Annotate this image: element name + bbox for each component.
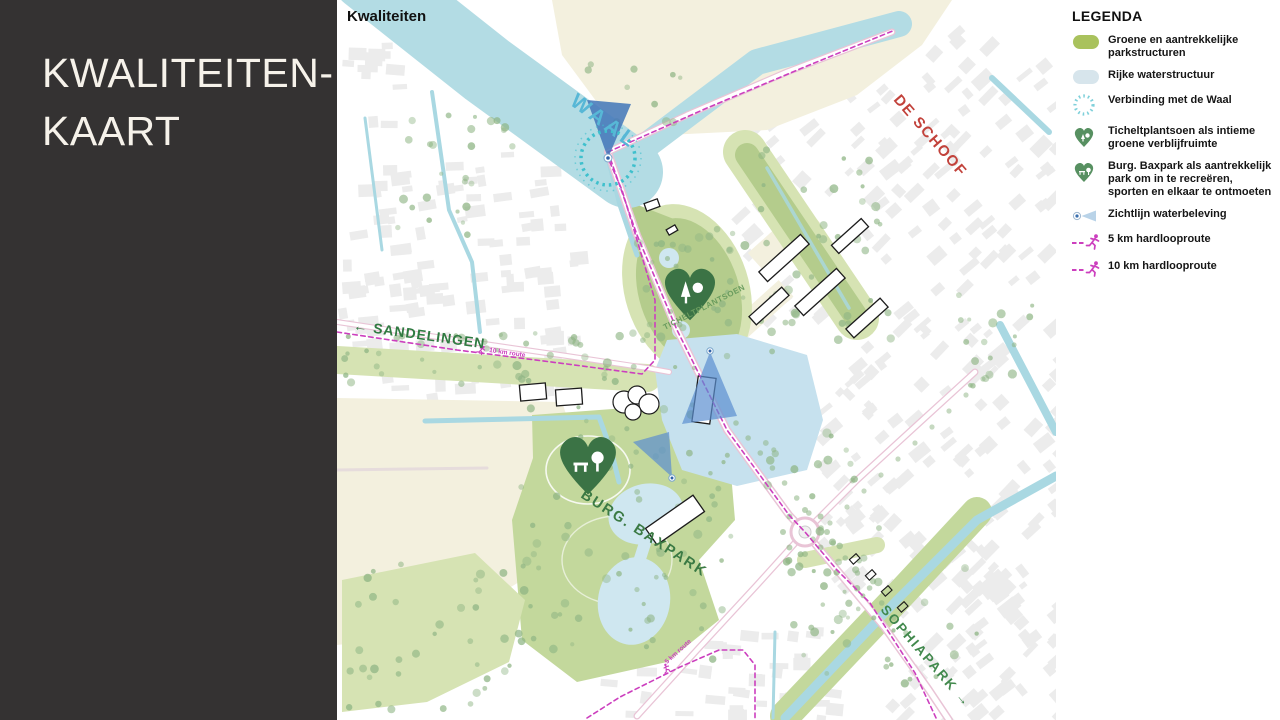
slide-title: KWALITEITEN- KAART <box>42 44 334 160</box>
water-area-icon <box>1072 69 1102 85</box>
ticheltplantsoen-heart-icon <box>1072 125 1102 149</box>
run-route-5km-icon <box>1072 233 1102 251</box>
park-area-icon <box>1072 34 1102 50</box>
title-panel: KWALITEITEN- KAART <box>0 0 337 720</box>
legend-label: Verbinding met de Waal <box>1108 94 1232 107</box>
legend-item-parkstructuren: Groene en aantrekkelijke parkstructuren <box>1072 34 1272 60</box>
legend-item-10km: 10 km hardlooproute <box>1072 260 1272 278</box>
legend-label: 5 km hardlooproute <box>1108 233 1211 246</box>
map-canvas: WAALDE SCHOOF← SANDELINGENTICHELTPLANTSO… <box>337 0 1056 720</box>
legend-item-waterstructuur: Rijke waterstructuur <box>1072 69 1272 85</box>
run-route-10km-icon <box>1072 260 1102 278</box>
legend-item-verbinding-waal: Verbinding met de Waal <box>1072 94 1272 116</box>
slide: KWALITEITEN- KAART WAALDE SCHOOF← SANDEL… <box>0 0 1280 720</box>
legend-label: Groene en aantrekkelijke parkstructuren <box>1108 34 1272 60</box>
legend-label: 10 km hardlooproute <box>1108 260 1217 273</box>
sightline-icon <box>1072 208 1102 224</box>
legend-label: Zichtlijn waterbeleving <box>1108 208 1227 221</box>
legend-item-baxpark: Burg. Baxpark als aantrekkelijk park om … <box>1072 160 1272 199</box>
legend-item-ticheltplantsoen: Ticheltplantsoen als intieme groene verb… <box>1072 125 1272 151</box>
baxpark-heart-icon <box>1072 160 1102 184</box>
legend-label: Burg. Baxpark als aantrekkelijk park om … <box>1108 160 1272 199</box>
legend-label: Ticheltplantsoen als intieme groene verb… <box>1108 125 1272 151</box>
waal-connection-icon <box>1072 94 1102 116</box>
legend-label: Rijke waterstructuur <box>1108 69 1214 82</box>
legend-title: LEGENDA <box>1072 8 1272 24</box>
kwaliteiten-map: WAALDE SCHOOF← SANDELINGENTICHELTPLANTSO… <box>337 0 1056 720</box>
map-title: Kwaliteiten <box>347 8 426 25</box>
legend-item-5km: 5 km hardlooproute <box>1072 233 1272 251</box>
legend-item-zichtlijn: Zichtlijn waterbeleving <box>1072 208 1272 224</box>
legend: LEGENDA Groene en aantrekkelijke parkstr… <box>1072 8 1272 287</box>
